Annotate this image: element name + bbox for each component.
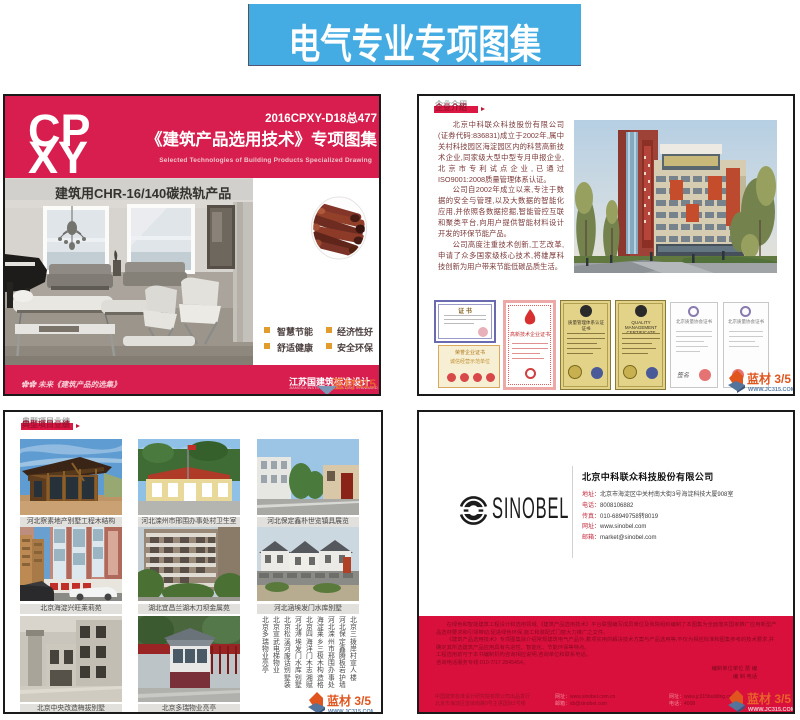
svg-text:蓝材 3/5: 蓝材 3/5 [747, 691, 791, 706]
svg-text:蓝材 3/5: 蓝材 3/5 [747, 371, 791, 386]
svg-text:蓝材 3/5: 蓝材 3/5 [327, 693, 371, 708]
svg-text:WWW.JC315.COM: WWW.JC315.COM [748, 707, 793, 713]
svg-text:WWW.JC315.COM: WWW.JC315.COM [748, 387, 793, 393]
svg-text:WWW.JC315.COM: WWW.JC315.COM [328, 709, 373, 714]
